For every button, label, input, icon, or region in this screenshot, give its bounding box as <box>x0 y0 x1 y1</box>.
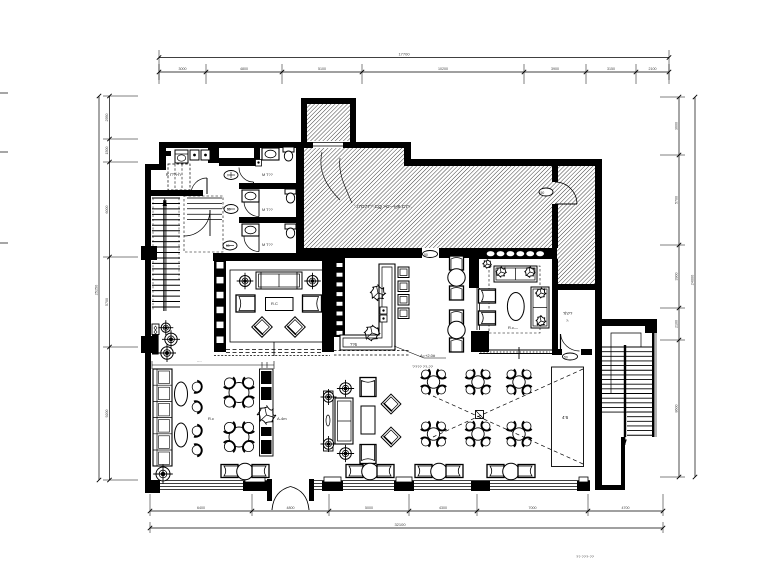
svg-text:??6: ??6 <box>350 342 358 347</box>
svg-text:4300: 4300 <box>439 506 447 510</box>
svg-text:3600: 3600 <box>675 122 679 130</box>
svg-text:M T??: M T?? <box>262 173 273 177</box>
svg-text:2950: 2950 <box>105 114 109 122</box>
svg-text:3900: 3900 <box>675 273 679 281</box>
svg-text:50: 50 <box>226 244 230 248</box>
svg-text:2100: 2100 <box>649 67 657 71</box>
svg-text:7000: 7000 <box>529 506 537 510</box>
svg-text:24000: 24000 <box>691 275 695 286</box>
svg-text:4’6: 4’6 <box>562 415 569 420</box>
svg-text:M T??: M T?? <box>262 208 273 212</box>
svg-text:25250: 25250 <box>95 285 99 296</box>
svg-text:32100: 32100 <box>394 522 406 527</box>
svg-text:?:: ?: <box>566 319 569 323</box>
svg-text:4800: 4800 <box>287 506 295 510</box>
svg-text:A-4m: A-4m <box>277 416 287 421</box>
svg-text:5700: 5700 <box>675 196 679 204</box>
svg-text:2100: 2100 <box>675 320 679 328</box>
svg-text:?h??: ?h?? <box>563 311 573 316</box>
svg-text:10200: 10200 <box>438 67 448 71</box>
svg-text:K r??i-h: K r??i-h <box>166 172 181 177</box>
svg-text:50: 50 <box>227 208 231 212</box>
svg-text:50: 50 <box>424 253 428 257</box>
svg-text:R.c—: R.c— <box>508 325 518 330</box>
svg-text:8600: 8600 <box>675 405 679 413</box>
svg-text:3150: 3150 <box>607 67 615 71</box>
svg-text:3000: 3000 <box>179 67 187 71</box>
svg-text:4700: 4700 <box>622 506 630 510</box>
svg-text:'???? ??-??: '???? ??-?? <box>412 364 434 369</box>
svg-text:R.c: R.c <box>208 416 214 421</box>
svg-text:5000: 5000 <box>365 506 373 510</box>
svg-text:4800: 4800 <box>240 67 248 71</box>
svg-text:...: ... <box>227 174 230 178</box>
svg-text:M T??: M T?? <box>262 243 273 247</box>
svg-text:A=+2.0#: A=+2.0# <box>420 353 436 358</box>
svg-text:9200: 9200 <box>105 410 109 418</box>
svg-text:R.C: R.C <box>271 301 278 306</box>
svg-text:3900: 3900 <box>551 67 559 71</box>
svg-text:?? ???·??: ?? ???·?? <box>576 554 595 559</box>
svg-text:····: ···· <box>197 360 202 364</box>
svg-text:5100: 5100 <box>318 67 326 71</box>
svg-text:ˇ./7O77’^.CQ̲ >C—H̲6.C7’›.: ˇ./7O77’^.CQ̲ >C—H̲6.C7’›. <box>354 204 412 210</box>
svg-text:6400: 6400 <box>197 506 205 510</box>
svg-text:50: 50 <box>564 356 568 360</box>
svg-text:50: 50 <box>541 191 545 195</box>
svg-text:17700: 17700 <box>398 52 410 57</box>
svg-text:6000: 6000 <box>105 206 109 214</box>
svg-text:1500: 1500 <box>105 147 109 155</box>
svg-text:5700: 5700 <box>105 298 109 306</box>
